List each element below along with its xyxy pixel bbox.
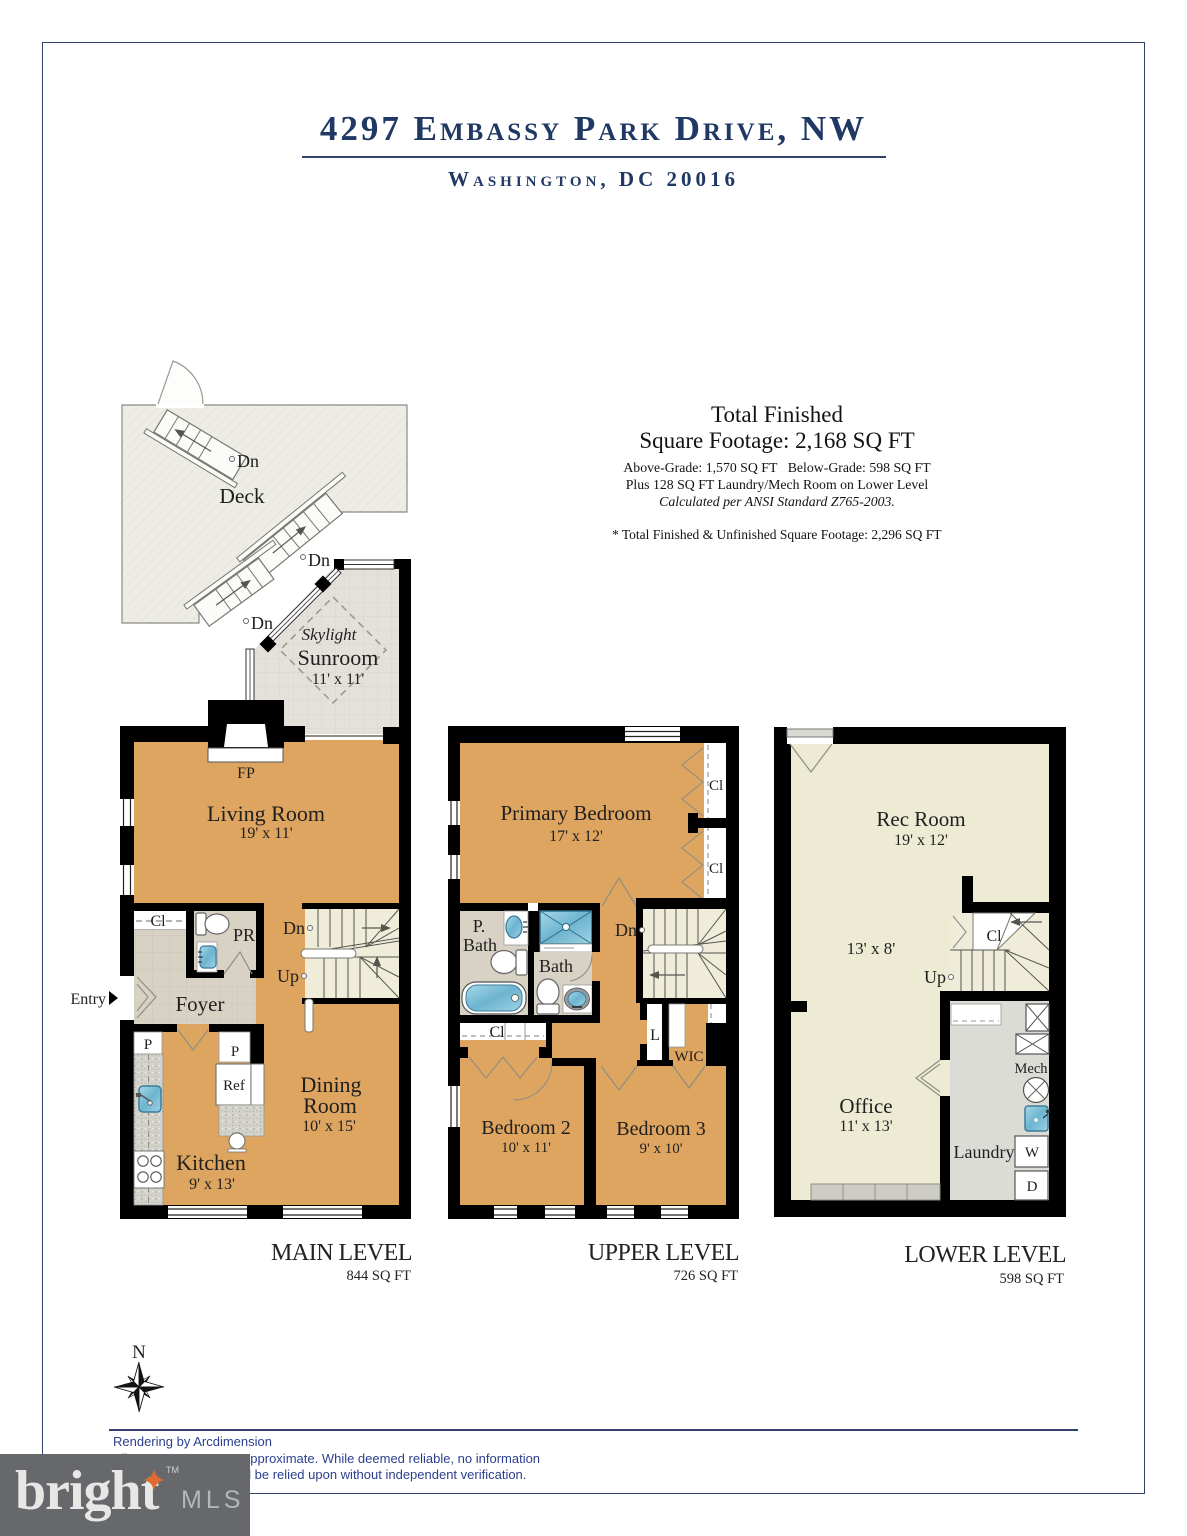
svg-text:N: N: [132, 1342, 146, 1363]
svg-text:Dn: Dn: [283, 918, 305, 938]
svg-text:Ref: Ref: [223, 1078, 245, 1094]
svg-text:Deck: Deck: [219, 484, 265, 508]
svg-text:Rec Room: Rec Room: [876, 807, 965, 831]
svg-text:Cl: Cl: [709, 861, 723, 877]
svg-text:WIC: WIC: [674, 1049, 703, 1065]
svg-text:726 SQ FT: 726 SQ FT: [674, 1268, 739, 1284]
svg-text:Primary Bedroom: Primary Bedroom: [500, 801, 651, 825]
svg-text:Skylight: Skylight: [302, 625, 358, 644]
svg-text:L: L: [650, 1027, 660, 1044]
svg-text:Bedroom 3: Bedroom 3: [616, 1118, 705, 1140]
svg-text:10' x 11': 10' x 11': [501, 1140, 551, 1156]
svg-text:13' x 8': 13' x 8': [847, 939, 896, 958]
svg-text:Up: Up: [924, 967, 946, 987]
svg-text:Up: Up: [277, 966, 299, 986]
svg-text:Bedroom 2: Bedroom 2: [481, 1117, 570, 1139]
svg-text:W: W: [1025, 1145, 1040, 1161]
svg-text:Mech: Mech: [1014, 1061, 1048, 1077]
svg-text:P.: P.: [473, 916, 486, 936]
svg-text:Kitchen: Kitchen: [176, 1150, 246, 1175]
svg-text:Cl: Cl: [986, 928, 1002, 945]
svg-text:LOWER LEVEL: LOWER LEVEL: [904, 1242, 1066, 1268]
svg-text:10' x 15': 10' x 15': [302, 1118, 356, 1135]
svg-text:Entry: Entry: [70, 991, 106, 1008]
svg-text:844 SQ FT: 844 SQ FT: [347, 1268, 412, 1284]
svg-text:UPPER LEVEL: UPPER LEVEL: [588, 1240, 739, 1266]
svg-text:P: P: [144, 1037, 152, 1053]
svg-text:Cl: Cl: [489, 1024, 505, 1041]
svg-text:Living Room: Living Room: [207, 801, 325, 826]
svg-text:598 SQ FT: 598 SQ FT: [1000, 1271, 1065, 1287]
svg-text:Sunroom: Sunroom: [298, 645, 379, 670]
svg-text:FP: FP: [237, 765, 255, 782]
svg-text:Laundry: Laundry: [954, 1142, 1015, 1162]
svg-text:19' x 11': 19' x 11': [239, 825, 292, 842]
svg-text:Dn: Dn: [237, 451, 259, 471]
svg-text:11' x 13': 11' x 13': [839, 1118, 892, 1135]
svg-text:Bath: Bath: [463, 935, 497, 955]
svg-text:Dn: Dn: [308, 550, 330, 570]
svg-text:11' x 11': 11' x 11': [312, 671, 365, 688]
svg-text:Bath: Bath: [539, 956, 573, 976]
svg-text:PR: PR: [233, 925, 255, 945]
svg-text:Room: Room: [303, 1093, 357, 1118]
svg-text:P: P: [231, 1044, 239, 1060]
svg-text:Office: Office: [839, 1094, 892, 1118]
svg-text:MAIN LEVEL: MAIN LEVEL: [271, 1240, 412, 1266]
svg-text:Cl: Cl: [709, 778, 723, 794]
svg-text:9' x 13': 9' x 13': [189, 1176, 235, 1193]
svg-text:Dn: Dn: [251, 613, 273, 633]
svg-text:Cl: Cl: [150, 913, 166, 930]
svg-text:9' x 10': 9' x 10': [640, 1141, 683, 1157]
svg-text:Dn: Dn: [615, 920, 637, 940]
svg-text:19' x 12': 19' x 12': [894, 832, 948, 849]
svg-text:Foyer: Foyer: [176, 992, 225, 1016]
svg-text:D: D: [1027, 1179, 1038, 1195]
svg-text:17' x 12': 17' x 12': [549, 828, 603, 845]
